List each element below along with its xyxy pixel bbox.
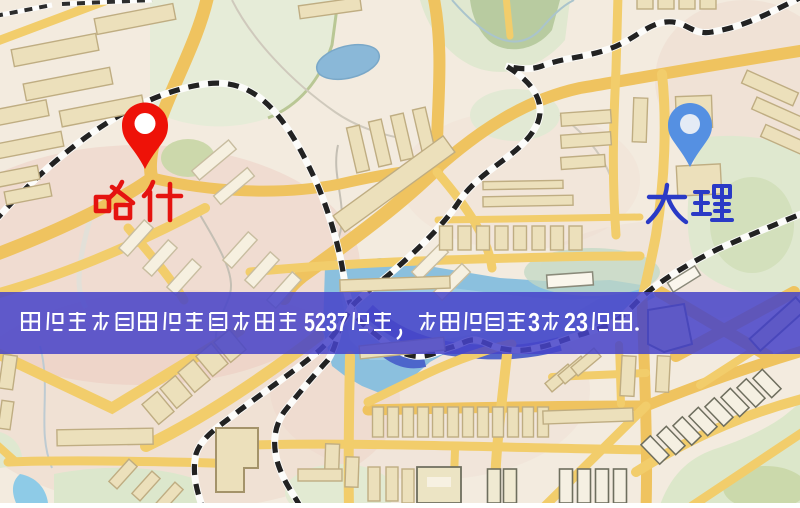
svg-text:5237: 5237 (304, 307, 348, 337)
svg-text:3: 3 (528, 307, 540, 337)
svg-text:23: 23 (564, 307, 588, 337)
